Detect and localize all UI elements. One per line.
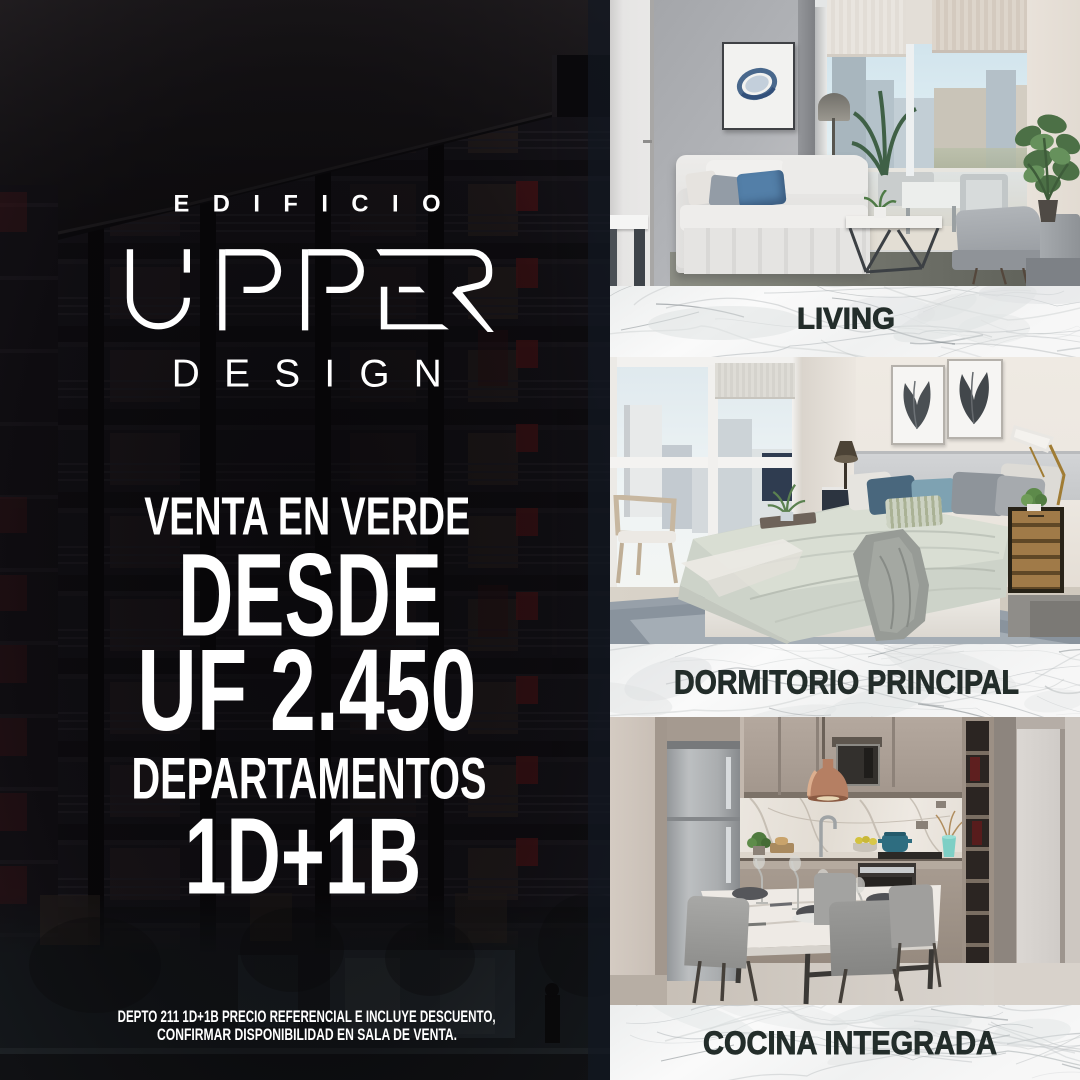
svg-text:COCINA INTEGRADA: COCINA INTEGRADA [703, 1025, 997, 1061]
svg-text:UF 2.450: UF 2.450 [137, 625, 476, 755]
svg-text:DORMITORIO PRINCIPAL: DORMITORIO PRINCIPAL [674, 664, 1019, 701]
svg-text:CONFIRMAR DISPONIBILIDAD EN S: CONFIRMAR DISPONIBILIDAD EN SALA DE VENT… [157, 1026, 457, 1044]
svg-text:LIVING: LIVING [797, 303, 895, 336]
svg-text:DEPTO 211 1D+1B PRECIO REFEREN: DEPTO 211 1D+1B PRECIO REFERENCIAL E INC… [118, 1008, 496, 1026]
svg-text:1D+1B: 1D+1B [185, 796, 422, 917]
